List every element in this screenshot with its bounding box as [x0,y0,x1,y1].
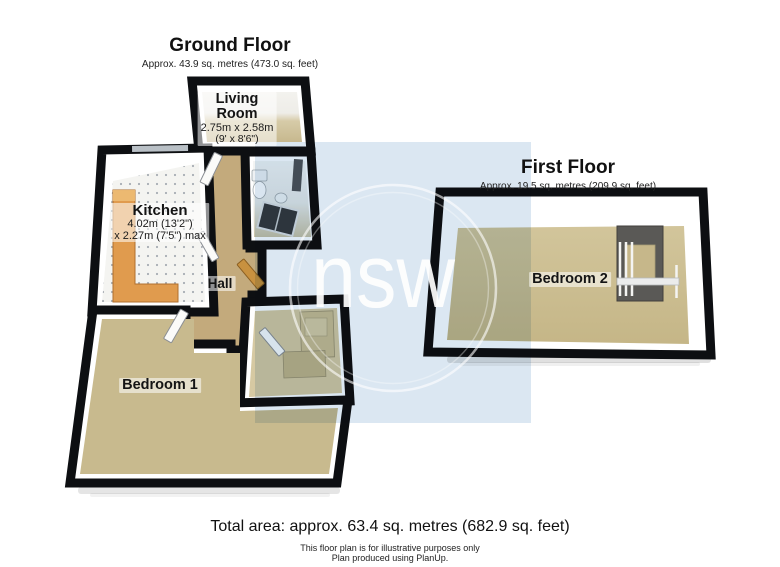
kitchen-dims-1: 4.02m (13'2") [114,218,206,230]
first-floor-header: First Floor Approx. 19.5 sq. metres (209… [480,157,656,192]
first-floor-title: First Floor [480,157,656,179]
watermark-text: nsw [311,227,456,327]
hall-label: Hall [205,276,236,291]
ground-floor-header: Ground Floor Approx. 43.9 sq. metres (47… [142,35,318,70]
ground-floor-area: Approx. 43.9 sq. metres (473.0 sq. feet) [142,59,318,70]
bed-rail [617,278,679,285]
bedroom-2-label: Bedroom 2 [529,272,611,287]
living-room-label: Living Room 2.75m x 2.58m (9' x 8'6") [198,92,277,146]
kitchen-counter-top [113,190,135,201]
bedroom-2-name: Bedroom 2 [532,272,608,287]
bedroom-1-name: Bedroom 1 [122,378,198,393]
kitchen-window [132,145,188,152]
first-floor-area: Approx. 19.5 sq. metres (209.9 sq. feet) [480,181,656,192]
bed [625,245,655,279]
floorplan-canvas: nsw Ground Floor Approx. 43.9 sq. metres… [0,0,780,567]
ground-floor-title: Ground Floor [142,35,318,57]
credit-text: Plan produced using PlanUp. [0,553,780,563]
bedroom-1-label: Bedroom 1 [119,378,201,393]
total-area-text: Total area: approx. 63.4 sq. metres (682… [0,518,780,536]
living-room-dims-imperial: (9' x 8'6") [201,134,274,146]
floorplan-drawing: nsw [0,0,780,567]
disclaimer-text: This floor plan is for illustrative purp… [0,543,780,553]
kitchen-dims-2: x 2.27m (7'5") max [114,230,206,242]
hall-name: Hall [208,276,233,291]
kitchen-name: Kitchen [114,203,206,218]
kitchen-label: Kitchen 4.02m (13'2") x 2.27m (7'5") max [111,203,209,242]
living-room-name: Living Room [211,92,263,122]
